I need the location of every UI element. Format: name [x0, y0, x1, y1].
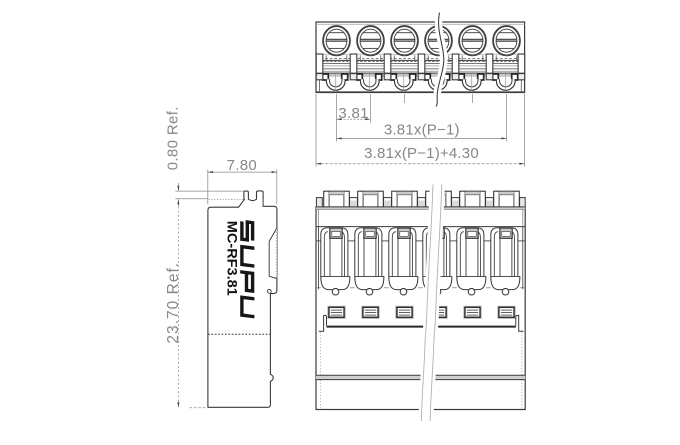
- svg-text:23.70 Ref.: 23.70 Ref.: [165, 263, 182, 344]
- svg-text:3.81: 3.81: [338, 105, 368, 122]
- svg-text:3.81x(P−1): 3.81x(P−1): [384, 122, 460, 139]
- svg-text:3.81x(P−1)+4.30: 3.81x(P−1)+4.30: [364, 145, 479, 162]
- svg-text:MC-RF3.81: MC-RF3.81: [225, 221, 240, 297]
- svg-text:7.80: 7.80: [227, 157, 257, 174]
- svg-text:0.80 Ref.: 0.80 Ref.: [165, 106, 182, 170]
